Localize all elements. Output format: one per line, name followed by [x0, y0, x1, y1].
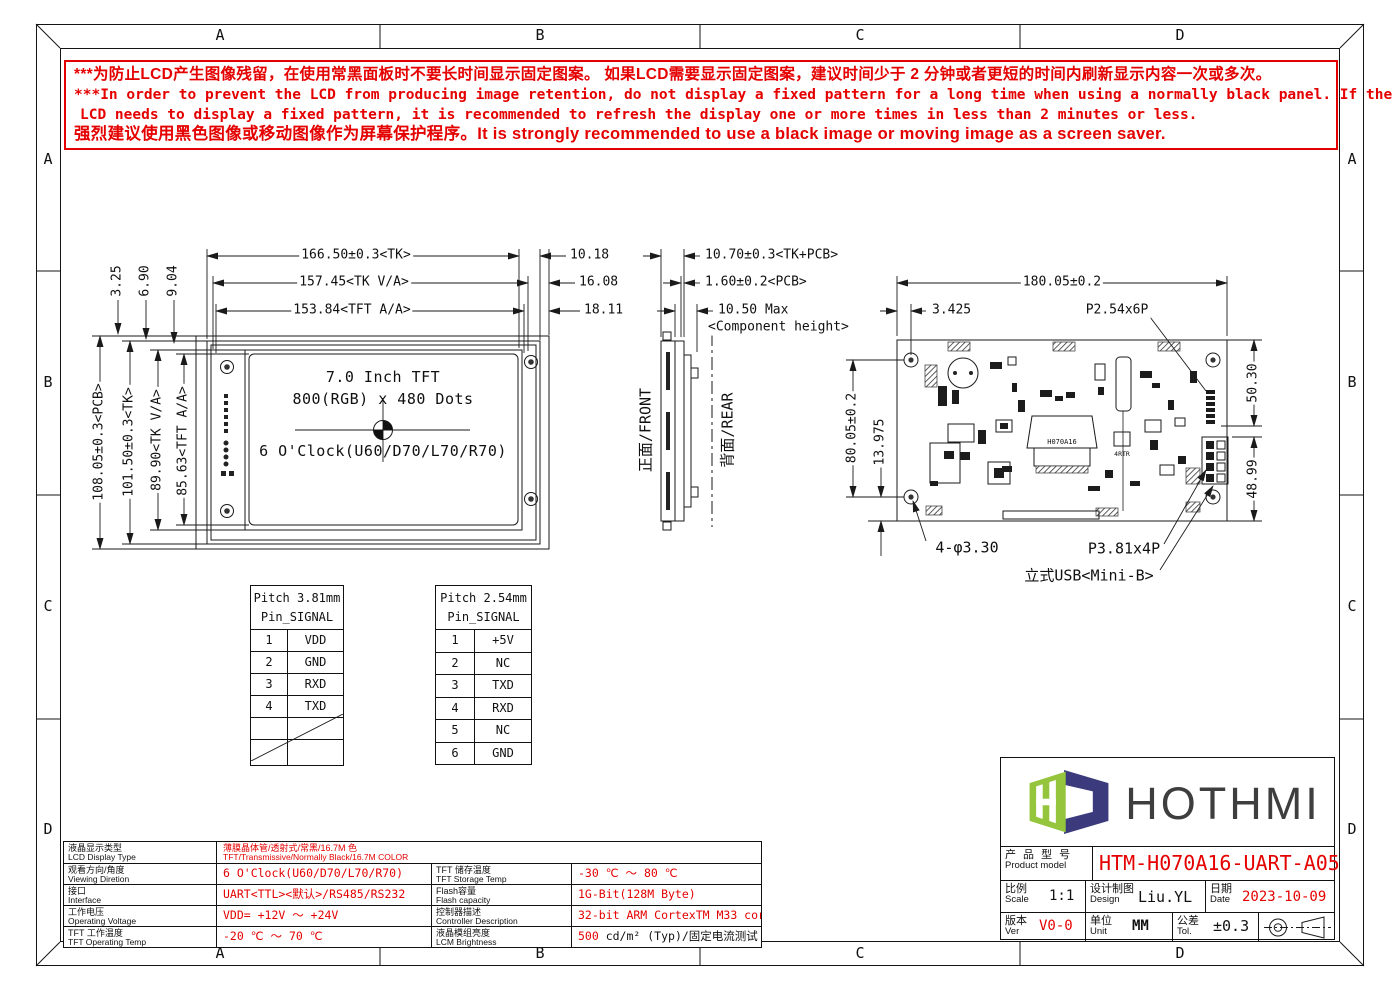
side-dimensions [643, 249, 713, 352]
spec-value: VDD= +12V ～ +24V [216, 906, 431, 926]
screen-size-label: 7.0 Inch TFT [326, 368, 440, 386]
pcb-hatched-pads [925, 342, 1200, 516]
dim-va-height: 89.90<TK V/A> [151, 387, 166, 493]
pin-signal: +5V [475, 630, 531, 652]
scale-value: 1:1 [1049, 888, 1074, 904]
spec-value: -30 ℃ ～ 80 ℃ [571, 864, 761, 884]
pin-table-3p81: Pitch 3.81mm Pin_SIGNAL 1VDD 2GND 3RXD 4… [250, 585, 344, 766]
scale-row: 比例Scale 1:1 设计制图Design Liu.YL 日期Date 202… [1001, 880, 1334, 912]
dim-tk-height: 101.50±0.3<TK> [123, 385, 138, 499]
product-model-row: 产 品 型 号 Product model HTM-H070A16-UART-A… [1001, 846, 1334, 880]
table-row: 4RXD [436, 697, 531, 720]
table-row: 3RXD [251, 673, 343, 695]
dim-component-height-note: <Component height> [706, 321, 851, 336]
dim-aa-width: 153.84<TFT A/A> [291, 304, 412, 319]
label-connector-4p: P3.81x4P [1086, 540, 1162, 557]
pin-number: 4 [436, 698, 475, 720]
spec-label: 工作电压Operating Voltage [64, 906, 216, 926]
pin-number: 6 [436, 743, 475, 765]
pin-signal: TXD [475, 675, 531, 697]
date-value: 2023-10-09 [1242, 889, 1326, 905]
dim-left-offset-3: 9.04 [167, 263, 182, 298]
table-diagonal [251, 714, 343, 761]
label-usb: 立式USB<Mini-B> [1022, 567, 1155, 584]
dim-hole-vspan: 80.05±0.2 [846, 391, 861, 465]
table-row: 观看方向/角度Viewing Diretion 6 O'Clock(U60/D7… [64, 863, 761, 884]
warning-line-4: 强烈建议使用黑色图像或移动图像作为屏幕保护程序。It is strongly r… [74, 126, 1166, 143]
table-row: 1VDD [251, 629, 343, 651]
dim-offset-2: 16.08 [577, 276, 620, 291]
dim-offset-1: 10.18 [568, 249, 611, 264]
pin-number: 1 [436, 630, 475, 652]
rear-view: H070A16 [897, 340, 1228, 521]
design-value: Liu.YL [1138, 888, 1192, 906]
spec-value: 500 cd/m² (Typ)/固定电流测试 [571, 927, 761, 947]
tolerance-value: ±0.3 [1213, 917, 1249, 935]
chip-label: H070A16 [1047, 438, 1077, 446]
table-row: 接口Interface UART<TTL><默认>/RS485/RS232 Fl… [64, 884, 761, 905]
tolerance-label: 公差Tol. [1173, 913, 1199, 937]
table-row: 2NC [436, 652, 531, 675]
dim-pcb-thickness: 1.60±0.2<PCB> [703, 276, 809, 291]
warning-box: ***为防止LCD产生图像残留，在使用常黑面板时不要长时间显示固定图案。 如果L… [64, 60, 1338, 150]
spec-table: 液晶显示类型 LCD Display Type 薄膜晶体管/透射式/常黑/16.… [63, 841, 762, 948]
side-view [661, 332, 712, 530]
dim-va-width: 157.45<TK V/A> [297, 276, 411, 291]
pin-signal: NC [475, 720, 531, 742]
spec-value: 1G-Bit(128M Byte) [571, 885, 761, 905]
dim-left-offset-2: 6.90 [139, 263, 154, 298]
dim-component-height: 10.50 Max [716, 304, 790, 319]
rear-dimensions [846, 276, 1262, 570]
pin-table-1-title: Pitch 3.81mm [251, 591, 343, 605]
spec-label: Flash容量Flash capacity [431, 885, 571, 905]
screen-resolution-label: 800(RGB) x 480 Dots [292, 390, 473, 408]
spec-label: TFT 工作温度TFT Operating Temp [64, 927, 216, 947]
ffc-connector: H070A16 [1027, 416, 1097, 473]
pin-signal: RXD [288, 674, 343, 695]
rtr-label: 4RTR [1114, 450, 1130, 458]
label-mounting-holes: 4-φ3.30 [933, 539, 1000, 556]
drawing-sheet: A B C D A B C D A B C D A B C D [0, 0, 1400, 989]
terminal-4p [1202, 437, 1228, 484]
pin-number: 3 [251, 674, 288, 695]
dim-hole-offset: 3.425 [930, 304, 973, 319]
pin-signal: NC [475, 653, 531, 675]
spec-label: 液晶模组亮度LCM Brightness [431, 927, 571, 947]
pin-number: 2 [436, 653, 475, 675]
pin-number: 3 [436, 675, 475, 697]
pin-number: 2 [251, 652, 288, 673]
pin-signal: GND [475, 743, 531, 765]
version-label: 版本Ver [1001, 913, 1027, 937]
table-row: 3TXD [436, 674, 531, 697]
dim-aa-height: 85.63<TFT A/A> [177, 384, 192, 498]
label-connector-6p: P2.54x6P [1084, 304, 1151, 319]
pin-table-2p54: Pitch 2.54mm Pin_SIGNAL 1+5V 2NC 3TXD 4R… [435, 585, 532, 765]
spec-label: 观看方向/角度Viewing Diretion [64, 864, 216, 884]
unit-label: 单位Unit [1086, 913, 1112, 937]
scale-label: 比例Scale [1001, 881, 1029, 905]
title-block: HOTHMI 产 品 型 号 Product model HTM-H070A16… [1000, 757, 1335, 940]
pin-signal: RXD [475, 698, 531, 720]
spec-label: 液晶显示类型 LCD Display Type [64, 842, 216, 863]
front-connector-pins [221, 394, 234, 476]
unit-value: MM [1132, 918, 1149, 934]
hothmi-logo-icon [1023, 765, 1115, 839]
datum-symbol [374, 421, 393, 440]
table-row: TFT 工作温度TFT Operating Temp -20 ℃ ～ 70 ℃ … [64, 926, 761, 947]
version-value: V0-0 [1039, 918, 1073, 934]
projection-symbol-icon [1261, 913, 1334, 942]
table-row: 工作电压Operating Voltage VDD= +12V ～ +24V 控… [64, 905, 761, 926]
dim-offset-3: 18.11 [582, 304, 625, 319]
dim-bottom-offset: 13.975 [874, 417, 889, 468]
product-model-value: HTM-H070A16-UART-A05 [1099, 851, 1340, 875]
brand-name: HOTHMI [1115, 778, 1331, 830]
dim-pcb-height: 108.05±0.3<PCB> [93, 381, 108, 502]
spec-value: -20 ℃ ～ 70 ℃ [216, 927, 431, 947]
pin-signal: VDD [288, 630, 343, 651]
table-row: 6GND [436, 742, 531, 765]
warning-line-2: ***In order to prevent the LCD from prod… [74, 88, 1392, 103]
pin-number: 5 [436, 720, 475, 742]
header-6p [1206, 390, 1215, 424]
dim-tk-width: 166.50±0.3<TK> [299, 249, 413, 264]
dim-right-top: 50.30 [1247, 361, 1262, 404]
warning-line-1: ***为防止LCD产生图像残留，在使用常黑面板时不要长时间显示固定图案。 如果L… [74, 67, 1271, 83]
screen-viewing-label: 6 O'Clock(U60/D70/L70/R70) [259, 442, 507, 460]
spec-value: 6 O'Clock(U60/D70/L70/R70) [216, 864, 431, 884]
version-row: 版本Ver V0-0 单位Unit MM 公差Tol. ±0.3 [1001, 912, 1334, 941]
pin-number: 1 [251, 630, 288, 651]
dim-tk-pcb-thickness: 10.70±0.3<TK+PCB> [703, 249, 840, 264]
table-row: 2GND [251, 651, 343, 673]
date-label: 日期Date [1206, 881, 1232, 905]
logo-row: HOTHMI [1001, 758, 1334, 846]
product-model-label: 产 品 型 号 Product model [1001, 847, 1093, 880]
design-label: 设计制图Design [1086, 881, 1134, 905]
pin-table-2-header: Pin_SIGNAL [436, 610, 531, 624]
warning-line-3: LCD needs to display a fixed pattern, it… [80, 108, 1197, 123]
pin-signal: GND [288, 652, 343, 673]
dim-left-offset-1: 3.25 [111, 263, 126, 298]
spec-value: UART<TTL><默认>/RS485/RS232 [216, 885, 431, 905]
table-row: 5NC [436, 719, 531, 742]
dim-pcb-width: 180.05±0.2 [1021, 276, 1103, 291]
spec-value: 32-bit ARM CortexTM M33 core [571, 906, 761, 926]
pin-table-2-title: Pitch 2.54mm [436, 591, 531, 605]
spec-label: TFT 储存温度TFT Storage Temp [431, 864, 571, 884]
label-front-side: 正面/FRONT [637, 386, 654, 474]
spec-label: 接口Interface [64, 885, 216, 905]
table-row: 1+5V [436, 629, 531, 652]
label-rear-side: 背面/REAR [719, 390, 736, 469]
dim-right-bottom: 48.99 [1247, 457, 1262, 500]
table-row: 液晶显示类型 LCD Display Type 薄膜晶体管/透射式/常黑/16.… [64, 842, 761, 863]
pin-table-1-header: Pin_SIGNAL [251, 610, 343, 624]
spec-label: 控制器描述Controller Description [431, 906, 571, 926]
spec-value: 薄膜晶体管/透射式/常黑/16.7M 色 TFT/Transmissive/No… [216, 842, 761, 863]
